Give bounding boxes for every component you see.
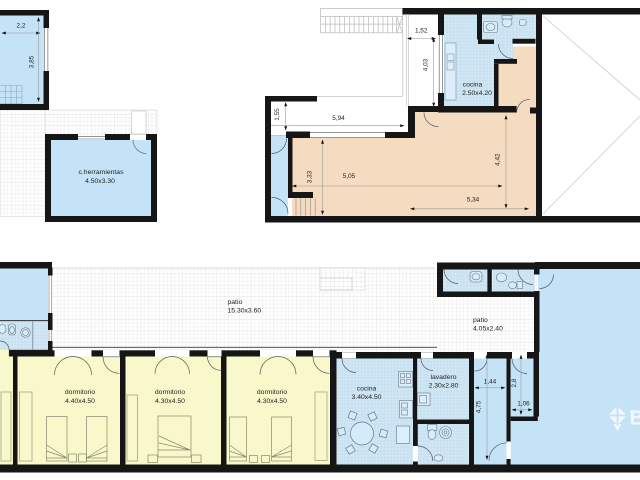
svg-text:1,55: 1,55 bbox=[274, 108, 281, 121]
svg-text:4.50x3.30: 4.50x3.30 bbox=[85, 178, 115, 185]
svg-text:1,06: 1,06 bbox=[517, 401, 530, 408]
svg-text:cocina: cocina bbox=[357, 386, 377, 393]
svg-text:4,75: 4,75 bbox=[476, 400, 483, 413]
svg-text:dormitorio: dormitorio bbox=[65, 389, 95, 396]
svg-text:dormitorio: dormitorio bbox=[155, 389, 185, 396]
svg-text:15.30x3.60: 15.30x3.60 bbox=[228, 308, 262, 315]
svg-text:4,03: 4,03 bbox=[423, 58, 430, 71]
svg-text:c.herramientas: c.herramientas bbox=[79, 169, 125, 176]
svg-text:cocina: cocina bbox=[463, 82, 483, 89]
svg-text:3,33: 3,33 bbox=[307, 170, 314, 183]
svg-text:B: B bbox=[630, 407, 640, 430]
svg-text:patio: patio bbox=[473, 317, 488, 324]
svg-text:2,8: 2,8 bbox=[511, 378, 518, 387]
svg-text:4.30x4.50: 4.30x4.50 bbox=[155, 398, 185, 405]
svg-text:4.30x4.50: 4.30x4.50 bbox=[257, 398, 287, 405]
svg-text:3,85: 3,85 bbox=[29, 55, 36, 68]
svg-text:4.40x4.50: 4.40x4.50 bbox=[65, 398, 95, 405]
svg-text:4,42: 4,42 bbox=[495, 153, 502, 166]
svg-text:dormitorio: dormitorio bbox=[257, 389, 287, 396]
svg-text:5,94: 5,94 bbox=[332, 115, 345, 122]
svg-text:5,34: 5,34 bbox=[467, 197, 480, 204]
svg-text:2.30x2.80: 2.30x2.80 bbox=[429, 383, 459, 390]
svg-text:2.50x4.20: 2.50x4.20 bbox=[462, 90, 492, 97]
svg-text:3.40x4.50: 3.40x4.50 bbox=[352, 394, 382, 401]
svg-text:1,52: 1,52 bbox=[415, 28, 428, 35]
svg-text:1,44: 1,44 bbox=[484, 379, 497, 386]
svg-text:5,05: 5,05 bbox=[343, 173, 356, 180]
svg-text:lavadero: lavadero bbox=[430, 374, 456, 381]
svg-text:patio: patio bbox=[228, 299, 243, 306]
svg-text:2,2: 2,2 bbox=[17, 23, 26, 30]
svg-text:4.05x2.40: 4.05x2.40 bbox=[473, 326, 503, 333]
